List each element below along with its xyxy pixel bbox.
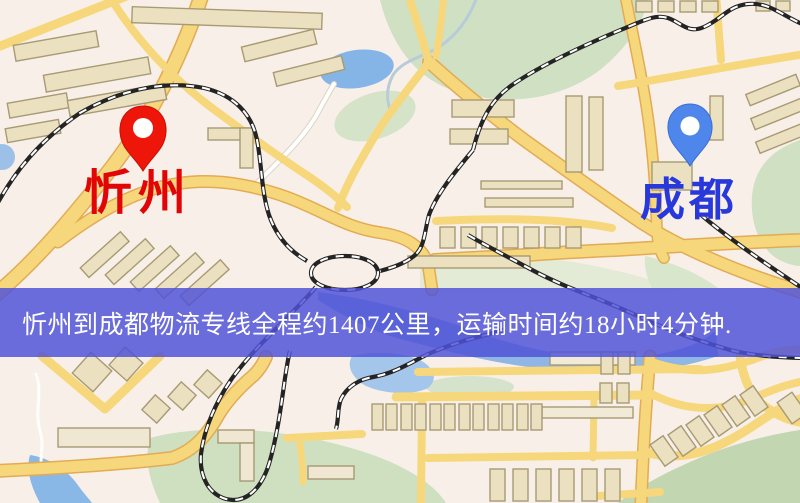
logistics-route-map: 忻州 成都 忻州到成都物流专线全程约1407公里，运输时间约18小时4分钟. xyxy=(0,0,800,503)
route-info-text: 忻州到成都物流专线全程约1407公里，运输时间约18小时4分钟. xyxy=(0,305,732,341)
map-canvas xyxy=(0,0,800,503)
origin-city-label: 忻州 xyxy=(84,170,192,218)
route-info-banner: 忻州到成都物流专线全程约1407公里，运输时间约18小时4分钟. xyxy=(0,288,800,357)
destination-city-label: 成都 xyxy=(640,178,738,223)
